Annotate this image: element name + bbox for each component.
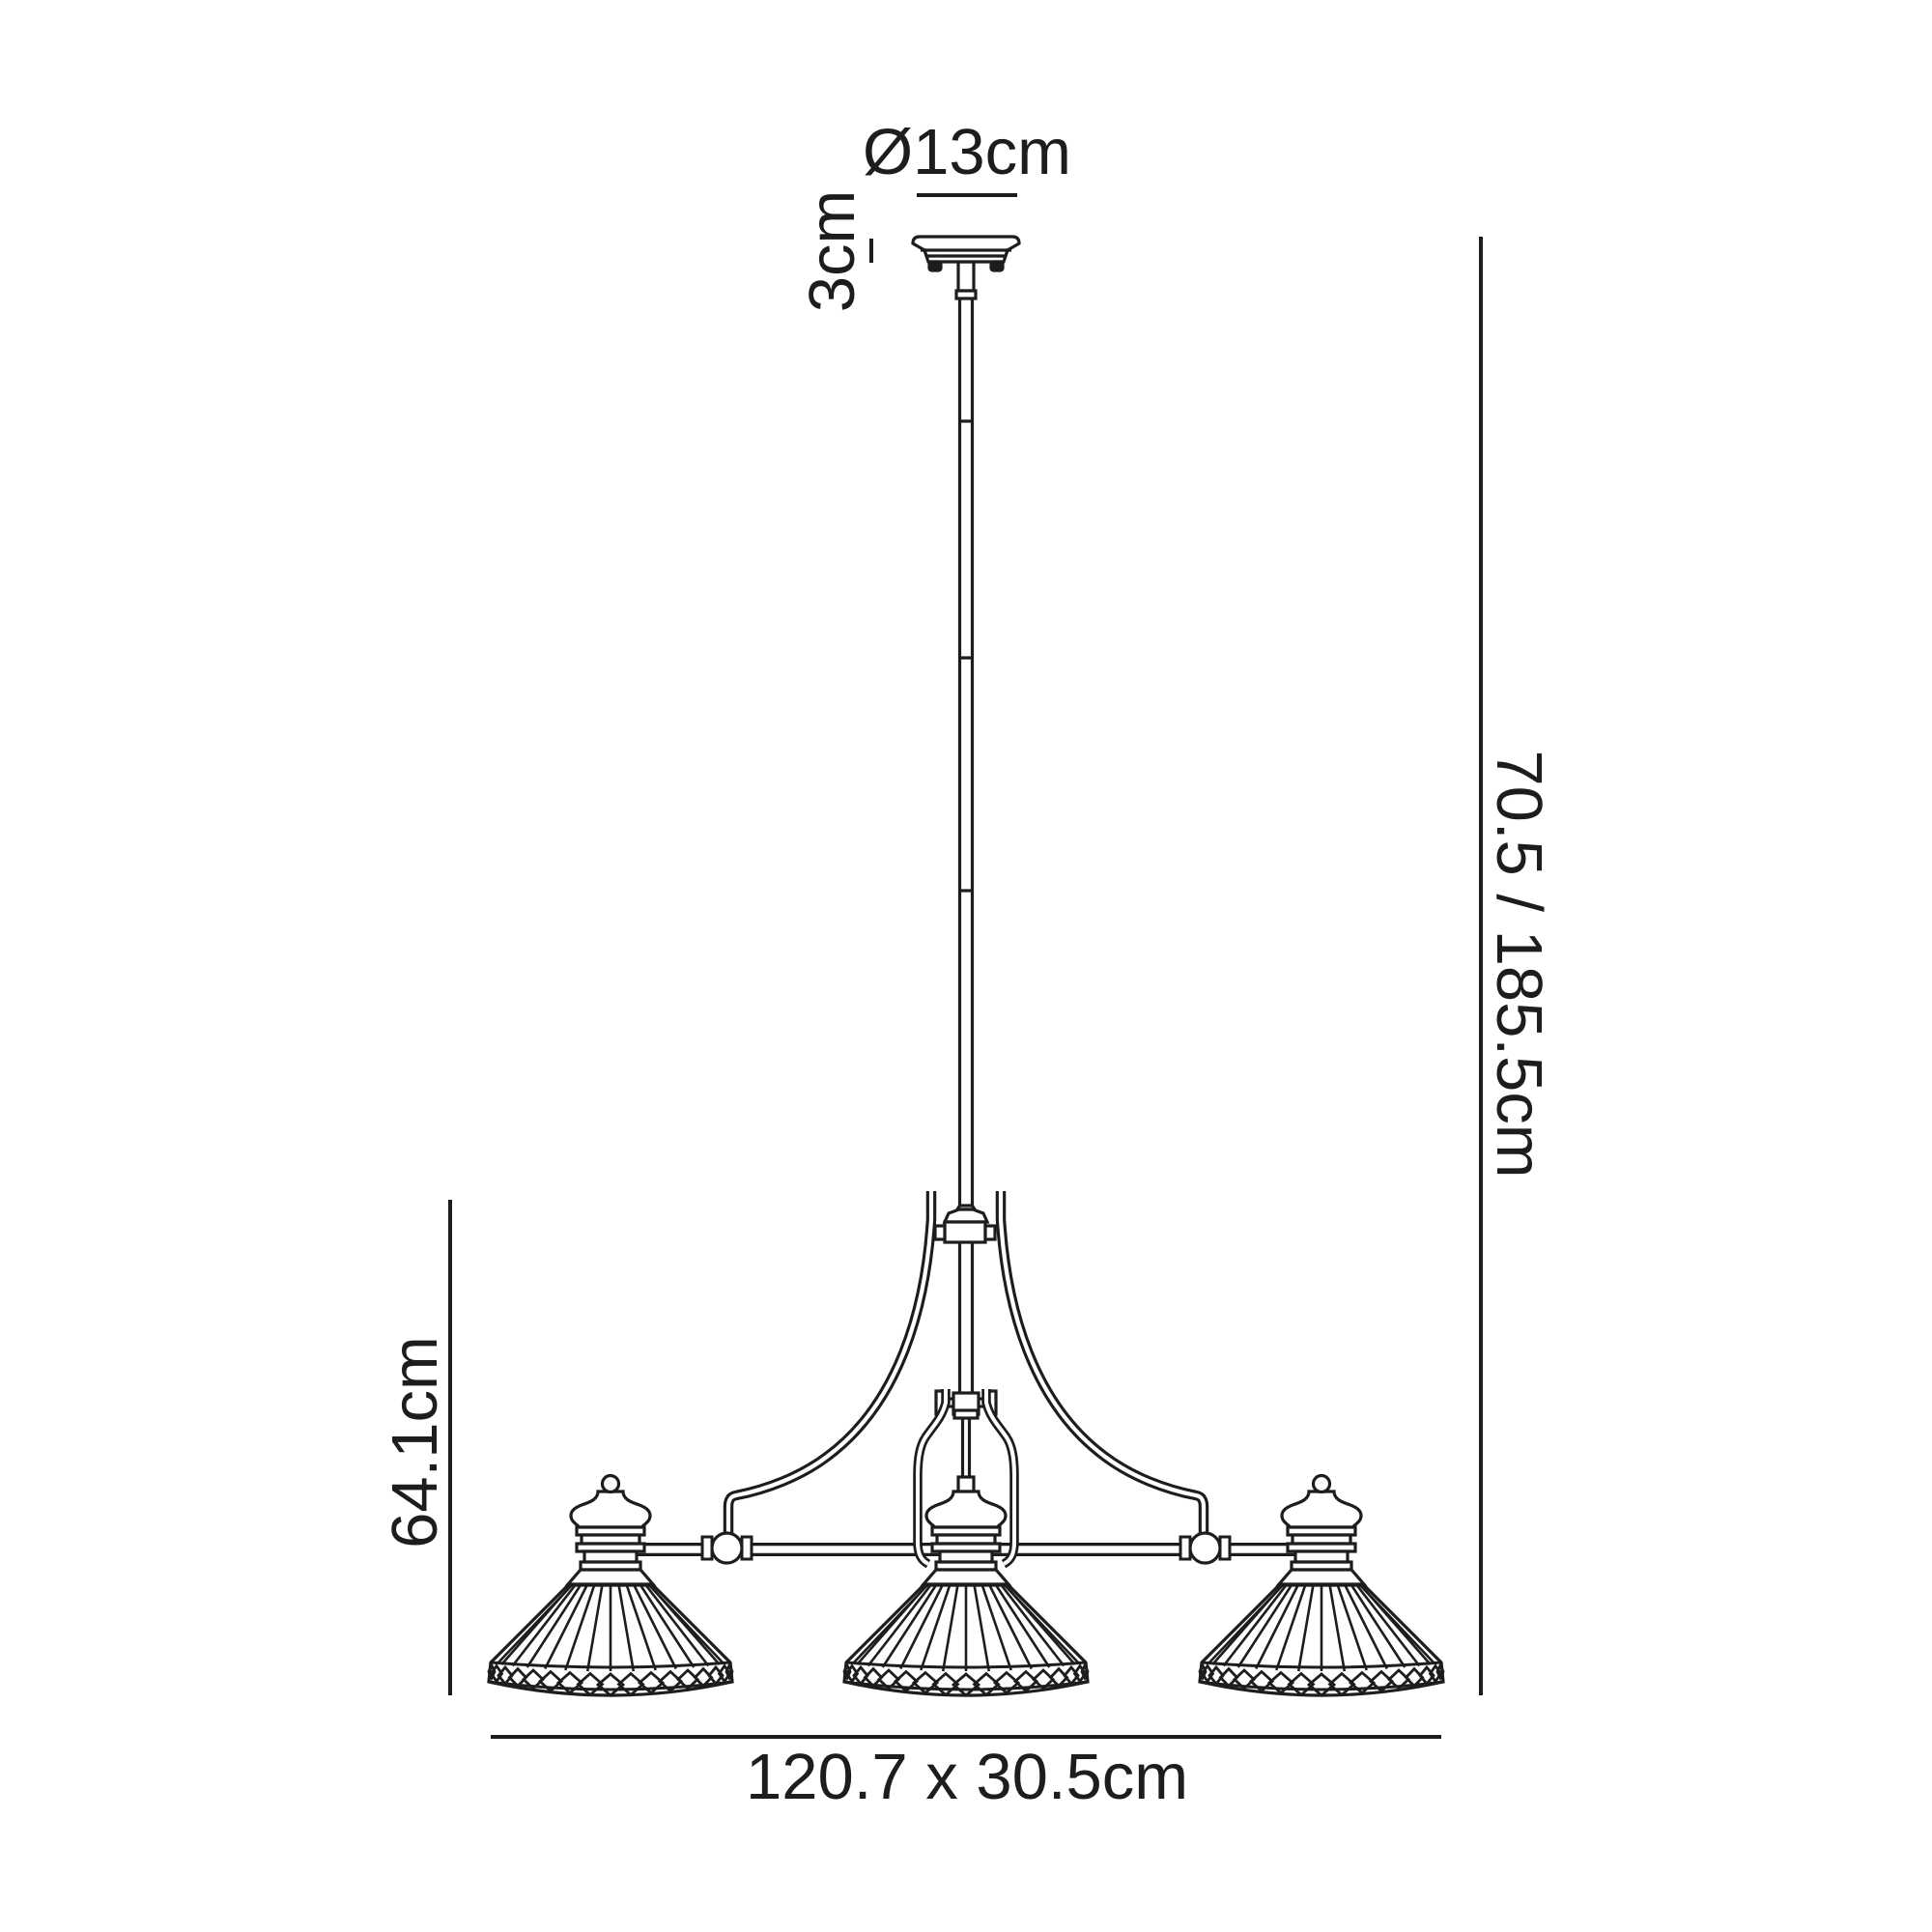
dimension-diagram: Ø13cm 3cm 70.5 / 185.5cm 64.1cm 120.7 x … xyxy=(0,0,1932,1932)
dimension-label-canopy-diameter: Ø13cm xyxy=(863,116,1071,188)
dimension-label-fixture-size: 120.7 x 30.5cm xyxy=(746,1741,1188,1813)
frame-arm-right xyxy=(1001,1191,1204,1542)
ball-joint-right xyxy=(1180,1533,1230,1563)
lamp-left xyxy=(489,1476,732,1696)
upper-junction xyxy=(935,1209,995,1242)
ball-joint-left xyxy=(702,1533,752,1563)
frame-arm-left xyxy=(728,1191,931,1542)
finial-knob xyxy=(603,1476,619,1492)
finial-knob xyxy=(1314,1476,1330,1492)
dimension-label-overall-height: 70.5 / 185.5cm xyxy=(1483,750,1555,1178)
dimension-label-canopy-height: 3cm xyxy=(796,190,868,313)
dimension-label-frame-drop: 64.1cm xyxy=(379,1336,451,1548)
canopy-foot xyxy=(929,262,941,270)
pendant-line-drawing: Ø13cm 3cm 70.5 / 185.5cm 64.1cm 120.7 x … xyxy=(0,0,1932,1932)
canopy-foot xyxy=(991,262,1003,270)
lamp-right xyxy=(1200,1476,1443,1696)
